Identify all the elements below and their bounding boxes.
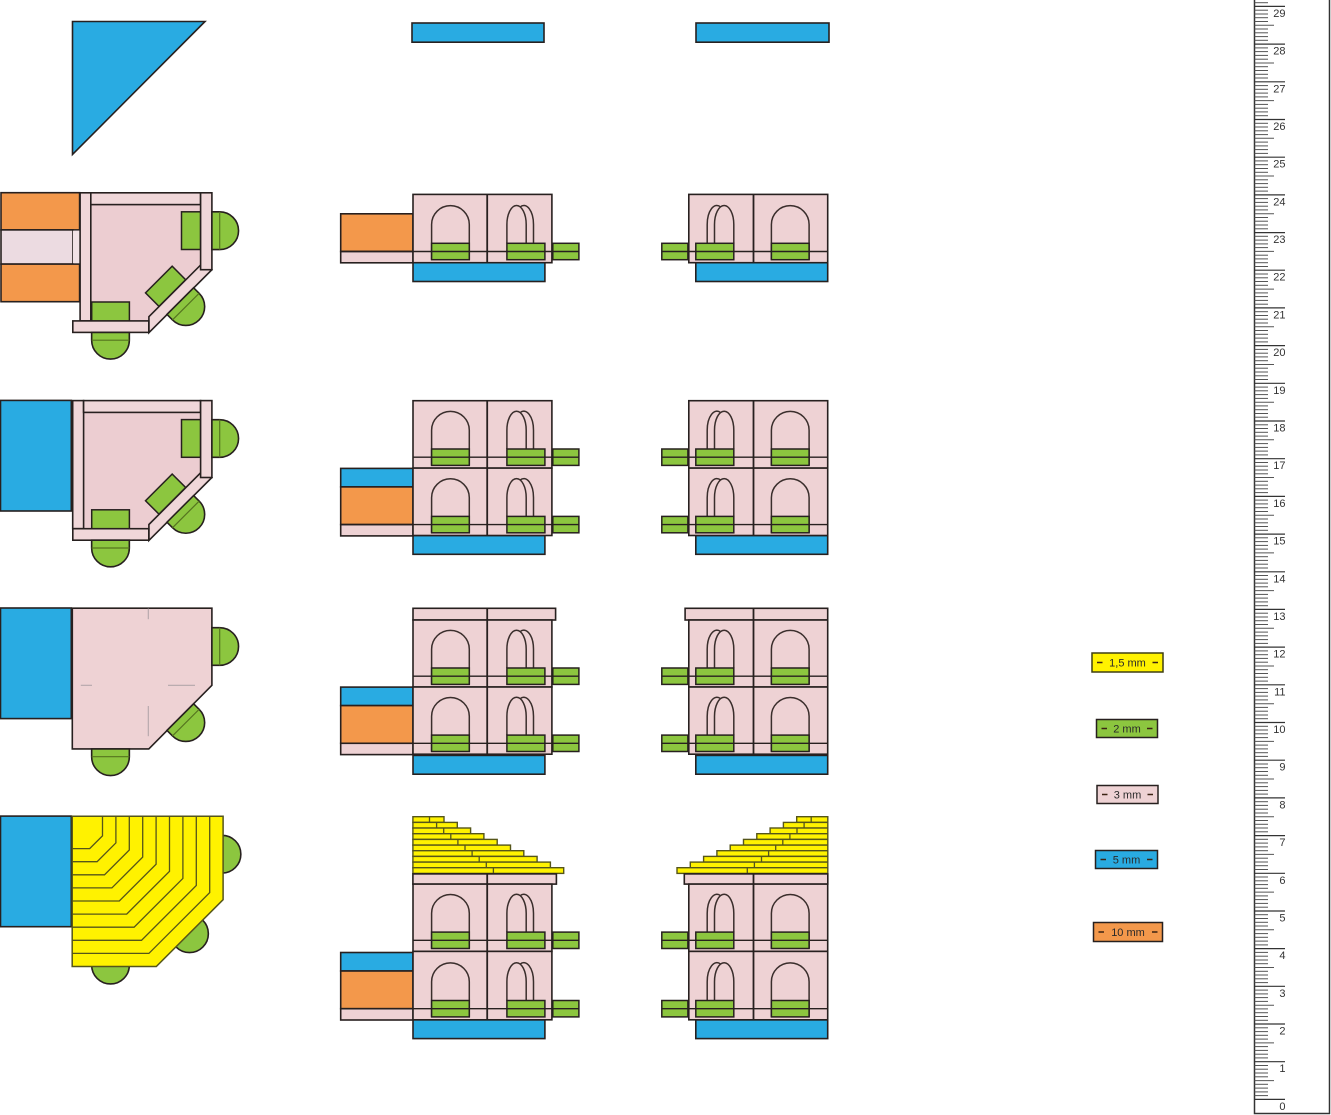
svg-text:12: 12	[1273, 649, 1285, 661]
svg-text:4: 4	[1279, 950, 1285, 962]
svg-text:10: 10	[1273, 724, 1285, 736]
svg-text:17: 17	[1273, 460, 1285, 472]
svg-text:21: 21	[1273, 309, 1285, 321]
svg-text:18: 18	[1273, 423, 1285, 435]
svg-text:15: 15	[1273, 536, 1285, 548]
svg-text:13: 13	[1273, 611, 1285, 623]
svg-text:27: 27	[1273, 83, 1285, 95]
svg-text:25: 25	[1273, 159, 1285, 171]
svg-text:29: 29	[1273, 8, 1285, 20]
svg-text:2 mm: 2 mm	[1113, 724, 1141, 736]
svg-text:20: 20	[1273, 347, 1285, 359]
svg-text:0: 0	[1279, 1101, 1285, 1113]
svg-text:24: 24	[1273, 196, 1285, 208]
svg-text:1: 1	[1279, 1063, 1285, 1075]
svg-text:22: 22	[1273, 272, 1285, 284]
svg-text:16: 16	[1273, 498, 1285, 510]
svg-text:2: 2	[1279, 1026, 1285, 1038]
svg-text:11: 11	[1274, 686, 1285, 698]
svg-text:5 mm: 5 mm	[1113, 855, 1141, 867]
svg-text:8: 8	[1279, 799, 1285, 811]
svg-text:1,5 mm: 1,5 mm	[1109, 658, 1146, 670]
svg-text:10 mm: 10 mm	[1111, 927, 1145, 939]
svg-text:9: 9	[1279, 762, 1285, 774]
svg-text:6: 6	[1279, 875, 1285, 887]
svg-text:3 mm: 3 mm	[1114, 790, 1142, 802]
svg-text:28: 28	[1273, 46, 1285, 58]
svg-text:19: 19	[1273, 385, 1285, 397]
svg-text:3: 3	[1279, 988, 1285, 1000]
svg-text:26: 26	[1273, 121, 1285, 133]
svg-text:14: 14	[1273, 573, 1285, 585]
svg-text:5: 5	[1279, 913, 1285, 925]
svg-text:7: 7	[1279, 837, 1285, 849]
svg-text:23: 23	[1273, 234, 1285, 246]
